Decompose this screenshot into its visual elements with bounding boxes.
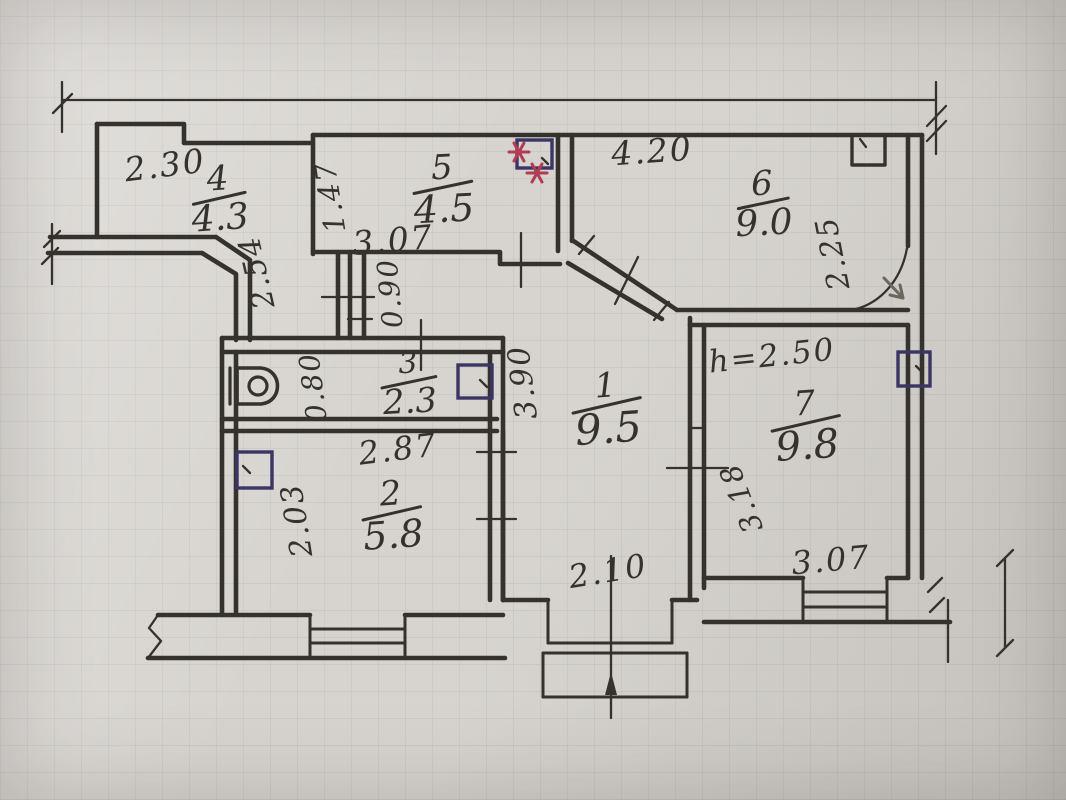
vent-shaft-icon	[898, 352, 930, 386]
vent-shaft-icon	[458, 365, 492, 398]
room-number: 7	[792, 387, 816, 421]
room-area: 5.8	[362, 514, 425, 556]
room-3-label: 32.3	[378, 348, 440, 419]
room-area: 2.3	[382, 383, 438, 420]
wall-break-icon	[148, 615, 161, 658]
room-area: 9.8	[774, 424, 840, 468]
room-number: 4	[206, 162, 230, 196]
diagonal-wall	[568, 236, 677, 320]
room2-walls	[148, 419, 516, 658]
right-dimension-line	[997, 550, 1013, 656]
room-6-label: 69.0	[732, 166, 793, 243]
room-number: 3	[398, 349, 419, 378]
dimension-label: 3.07	[790, 538, 872, 583]
star-mark-icon	[509, 143, 529, 161]
balcony-window-icon	[543, 600, 687, 697]
window-icon	[310, 615, 405, 658]
room-number: 5	[430, 151, 453, 184]
dimension-label: 0.90	[370, 257, 409, 330]
dimension-label: 4.20	[610, 129, 694, 174]
room-area: 9.5	[574, 406, 644, 453]
entrance-door-arc	[856, 248, 907, 309]
room-7-label: 79.8	[767, 385, 844, 468]
room-number: 2	[379, 477, 403, 511]
toilet-icon	[230, 368, 278, 404]
room-area: 4.3	[191, 199, 251, 239]
room-number: 6	[750, 167, 773, 200]
room-area: 9.0	[734, 205, 793, 244]
window-icon	[803, 578, 887, 622]
vent-shaft-icon	[237, 452, 272, 488]
room-number: 1	[593, 369, 617, 403]
room-1-label: 19.5	[568, 367, 645, 452]
dimension-label: 3.07	[351, 217, 436, 263]
room-2-label: 25.8	[358, 476, 425, 556]
vent-shaft-icon	[852, 135, 885, 165]
lobby-walls	[322, 252, 374, 338]
floorplan-photo: 44.354.569.032.319.579.825.82.301.473.07…	[0, 0, 1066, 800]
